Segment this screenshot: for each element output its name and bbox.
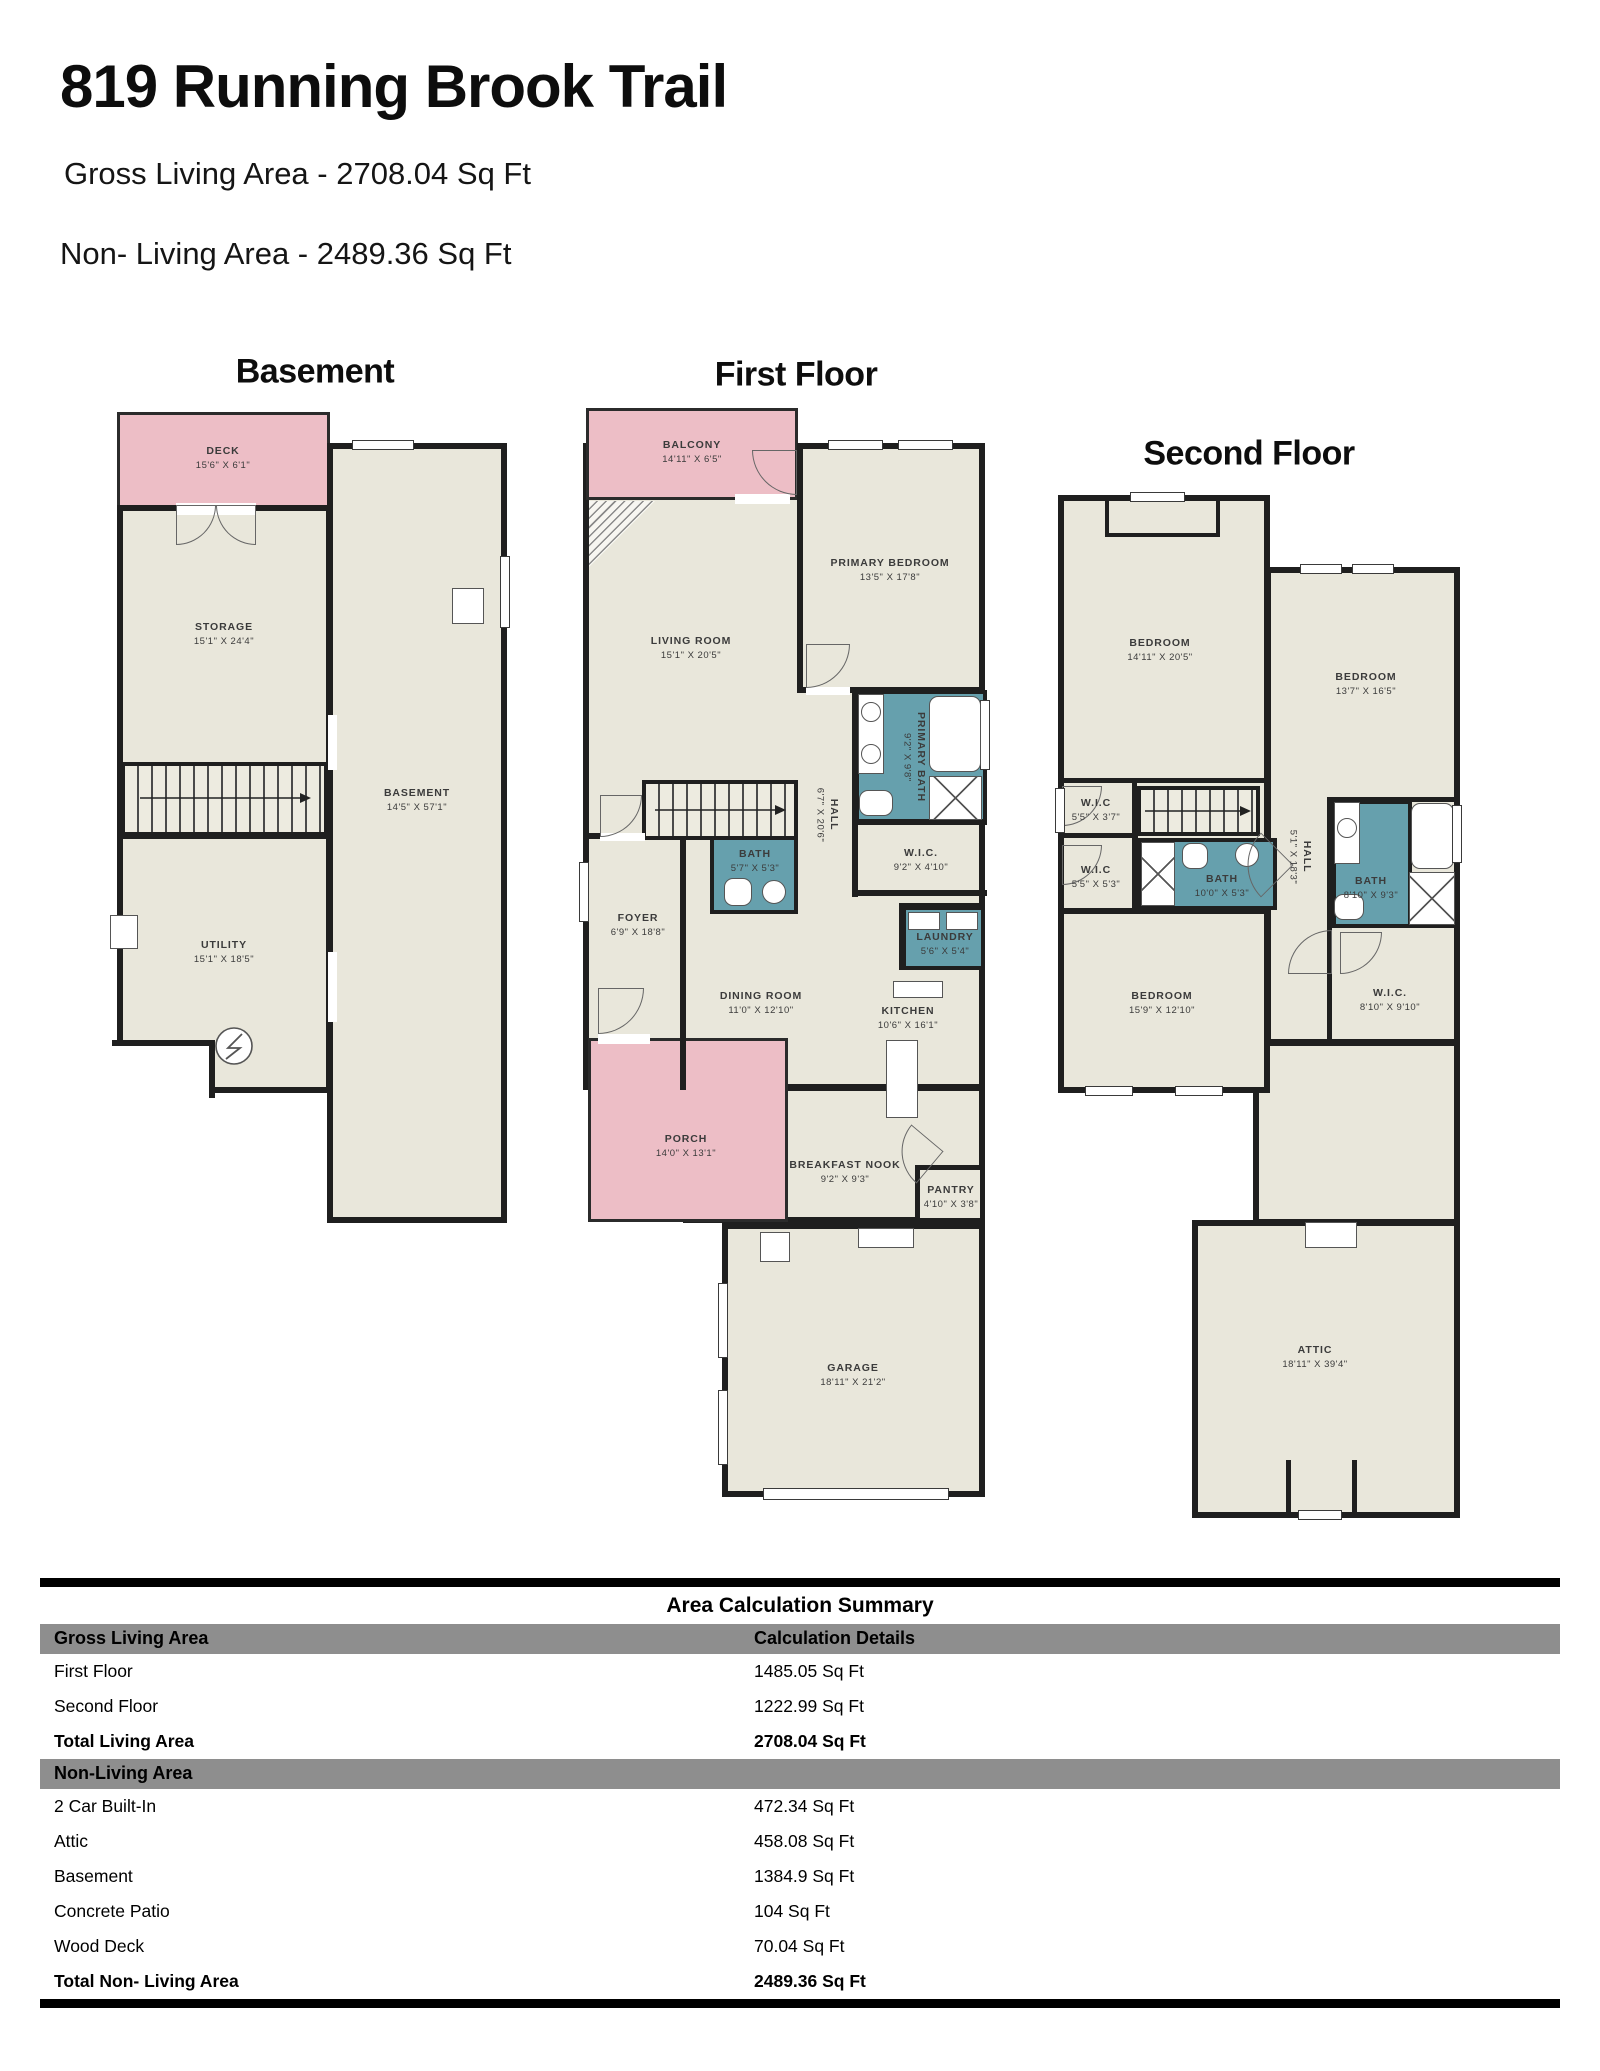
first-floor-title: First Floor — [715, 356, 878, 395]
col-header-nonliving: Non-Living Area — [54, 1763, 754, 1784]
row-label: Concrete Patio — [54, 1901, 754, 1922]
window — [1175, 1086, 1223, 1096]
door-opening — [598, 1034, 650, 1044]
window — [1130, 492, 1185, 502]
wall — [852, 890, 987, 896]
window-well — [452, 588, 484, 624]
row-label: Basement — [54, 1866, 754, 1887]
room-label-primary-bath: PRIMARY BATH9'2" X 9'8" — [900, 712, 928, 802]
stairs-arrow — [1145, 805, 1252, 817]
col-header-details: Calculation Details — [754, 1628, 1560, 1649]
toilet-icon — [724, 878, 752, 906]
toilet-icon — [1182, 843, 1208, 869]
shower-icon — [1409, 872, 1455, 925]
table-row: Attic 458.08 Sq Ft — [40, 1824, 1560, 1859]
window — [1452, 805, 1462, 863]
row-value: 70.04 Sq Ft — [754, 1936, 1560, 1957]
wall — [1105, 500, 1109, 537]
room-label-basement: BASEMENT14'5" X 57'1" — [384, 786, 450, 814]
basement-room-outline — [327, 443, 507, 1223]
room-label-deck: DECK15'6" X 6'1" — [196, 444, 250, 472]
room-label-hall: HALL6'7" X 20'6" — [813, 788, 841, 842]
window — [579, 862, 589, 922]
row-value: 104 Sq Ft — [754, 1901, 1560, 1922]
room-label-balcony: BALCONY14'11" X 6'5" — [662, 438, 721, 466]
row-value: 2708.04 Sq Ft — [754, 1731, 1560, 1752]
room-label-laundry: LAUNDRY5'6" X 5'4" — [916, 930, 973, 958]
room-label-kitchen: KITCHEN10'6" X 16'1" — [878, 1004, 938, 1032]
room-label-primary-bedroom: PRIMARY BEDROOM13'5" X 17'8" — [830, 556, 949, 584]
wall — [1352, 1460, 1357, 1515]
wall — [1105, 533, 1220, 537]
room-label-foyer: FOYER6'9" X 18'8" — [611, 911, 665, 939]
table-row-total-nonliving: Total Non- Living Area 2489.36 Sq Ft — [40, 1964, 1560, 1999]
basement-stairs-arrow — [140, 792, 312, 804]
window — [500, 556, 510, 628]
room-label-hall2: HALL5'1" X 18'3" — [1286, 830, 1314, 884]
row-label: First Floor — [54, 1661, 754, 1682]
wall — [1058, 833, 1138, 838]
stove-icon — [893, 981, 943, 998]
room-label-storage: STORAGE15'1" X 24'4" — [194, 620, 254, 648]
table-header-nonliving: Non-Living Area — [40, 1759, 1560, 1789]
window — [1055, 788, 1065, 833]
row-value: 1384.9 Sq Ft — [754, 1866, 1560, 1887]
kitchen-island — [886, 1040, 918, 1118]
room-label-wic: W.I.C.9'2" X 4'10" — [894, 846, 948, 874]
sink-icon — [1337, 818, 1357, 838]
table-row: Second Floor 1222.99 Sq Ft — [40, 1689, 1560, 1724]
porch-area — [588, 1038, 788, 1222]
sink-icon — [762, 880, 786, 904]
room-label-wic-c: W.I.C.8'10" X 9'10" — [1360, 986, 1420, 1014]
dryer-icon — [946, 912, 978, 930]
wall — [680, 830, 686, 1090]
table-row: First Floor 1485.05 Sq Ft — [40, 1654, 1560, 1689]
row-label: 2 Car Built-In — [54, 1796, 754, 1817]
electrical-panel-icon — [214, 1026, 254, 1066]
row-value: 1222.99 Sq Ft — [754, 1696, 1560, 1717]
window-well — [110, 915, 138, 949]
room-label-nook: BREAKFAST NOOK9'2" X 9'3" — [789, 1158, 900, 1186]
wall — [1216, 500, 1220, 537]
window — [1298, 1510, 1342, 1520]
room-label-garage: GARAGE18'11" X 21'2" — [820, 1361, 885, 1389]
toilet-icon — [859, 790, 893, 816]
row-label: Second Floor — [54, 1696, 754, 1717]
shower-icon — [929, 776, 982, 820]
utility-notch — [112, 1040, 215, 1098]
window — [1085, 1086, 1133, 1096]
basement-title: Basement — [236, 353, 395, 392]
room-label-dining: DINING ROOM11'0" X 12'10" — [720, 989, 802, 1017]
table-row: Concrete Patio 104 Sq Ft — [40, 1894, 1560, 1929]
window — [1300, 564, 1342, 574]
second-floor-title: Second Floor — [1143, 435, 1354, 474]
table-row-total-living: Total Living Area 2708.04 Sq Ft — [40, 1724, 1560, 1759]
row-label: Attic — [54, 1831, 754, 1852]
col-header-living: Gross Living Area — [54, 1628, 754, 1649]
room-label-wic-a: W.I.C5'5" X 3'7" — [1072, 796, 1121, 824]
row-label: Wood Deck — [54, 1936, 754, 1957]
table-row: 2 Car Built-In 472.34 Sq Ft — [40, 1789, 1560, 1824]
bathtub-icon — [929, 696, 981, 772]
table-bottom-rule — [40, 1999, 1560, 2008]
page-title: 819 Running Brook Trail — [60, 52, 727, 121]
window — [352, 440, 414, 450]
chimney-icon — [1305, 1222, 1357, 1248]
row-label: Total Living Area — [54, 1731, 754, 1752]
room-label-bedroom1: BEDROOM14'11" X 20'5" — [1127, 636, 1192, 664]
table-title: Area Calculation Summary — [40, 1587, 1560, 1624]
door-opening — [735, 494, 790, 504]
wall — [797, 443, 803, 693]
wall — [1058, 778, 1270, 783]
room-label-wic-b: W.I.C5'5" X 5'3" — [1072, 863, 1121, 891]
wall — [1286, 1460, 1291, 1515]
bathtub-icon — [1411, 803, 1454, 869]
gross-living-subtitle: Gross Living Area - 2708.04 Sq Ft — [64, 156, 531, 192]
table-top-rule — [40, 1578, 1560, 1587]
window — [828, 440, 883, 450]
door-opening — [806, 687, 850, 695]
room-label-porch: PORCH14'0" X 13'1" — [656, 1132, 716, 1160]
room-label-bath: BATH5'7" X 5'3" — [731, 847, 780, 875]
row-label: Total Non- Living Area — [54, 1971, 754, 1992]
room-label-utility: UTILITY15'1" X 18'5" — [194, 938, 254, 966]
row-value: 472.34 Sq Ft — [754, 1796, 1560, 1817]
room-label-bedroom3: BEDROOM15'9" X 12'10" — [1129, 989, 1195, 1017]
sink-icon — [861, 744, 881, 764]
table-row: Basement 1384.9 Sq Ft — [40, 1859, 1560, 1894]
window — [718, 1390, 728, 1465]
water-heater-icon — [760, 1232, 790, 1262]
door-opening — [328, 715, 337, 770]
window — [718, 1283, 728, 1358]
row-value: 2489.36 Sq Ft — [754, 1971, 1560, 1992]
non-living-subtitle: Non- Living Area - 2489.36 Sq Ft — [60, 236, 511, 272]
row-value: 458.08 Sq Ft — [754, 1831, 1560, 1852]
window — [1352, 564, 1394, 574]
row-value: 1485.05 Sq Ft — [754, 1661, 1560, 1682]
garage-door — [763, 1488, 949, 1500]
area-summary-table: Area Calculation Summary Gross Living Ar… — [40, 1578, 1560, 2008]
room-label-bedroom2: BEDROOM13'7" X 16'5" — [1335, 670, 1396, 698]
room-label-attic: ATTIC18'11" X 39'4" — [1282, 1343, 1347, 1371]
table-row: Wood Deck 70.04 Sq Ft — [40, 1929, 1560, 1964]
shower-icon — [1141, 842, 1175, 906]
window — [898, 440, 953, 450]
stairs-arrow — [655, 804, 787, 816]
washer-icon — [908, 912, 940, 930]
room-label-bath-a: BATH10'0" X 5'3" — [1195, 872, 1249, 900]
wall — [117, 833, 332, 839]
table-header-row: Gross Living Area Calculation Details — [40, 1624, 1560, 1654]
attic-upper-outline — [1253, 1040, 1460, 1225]
room-label-bath-b: BATH8'10" X 9'3" — [1344, 874, 1398, 902]
room-label-pantry: PANTRY4'10" X 3'8" — [924, 1183, 978, 1211]
room-label-living: LIVING ROOM15'1" X 20'5" — [651, 634, 731, 662]
door-opening — [328, 952, 337, 1022]
garage-step — [858, 1228, 914, 1248]
sink-icon — [861, 702, 881, 722]
window — [980, 700, 990, 770]
